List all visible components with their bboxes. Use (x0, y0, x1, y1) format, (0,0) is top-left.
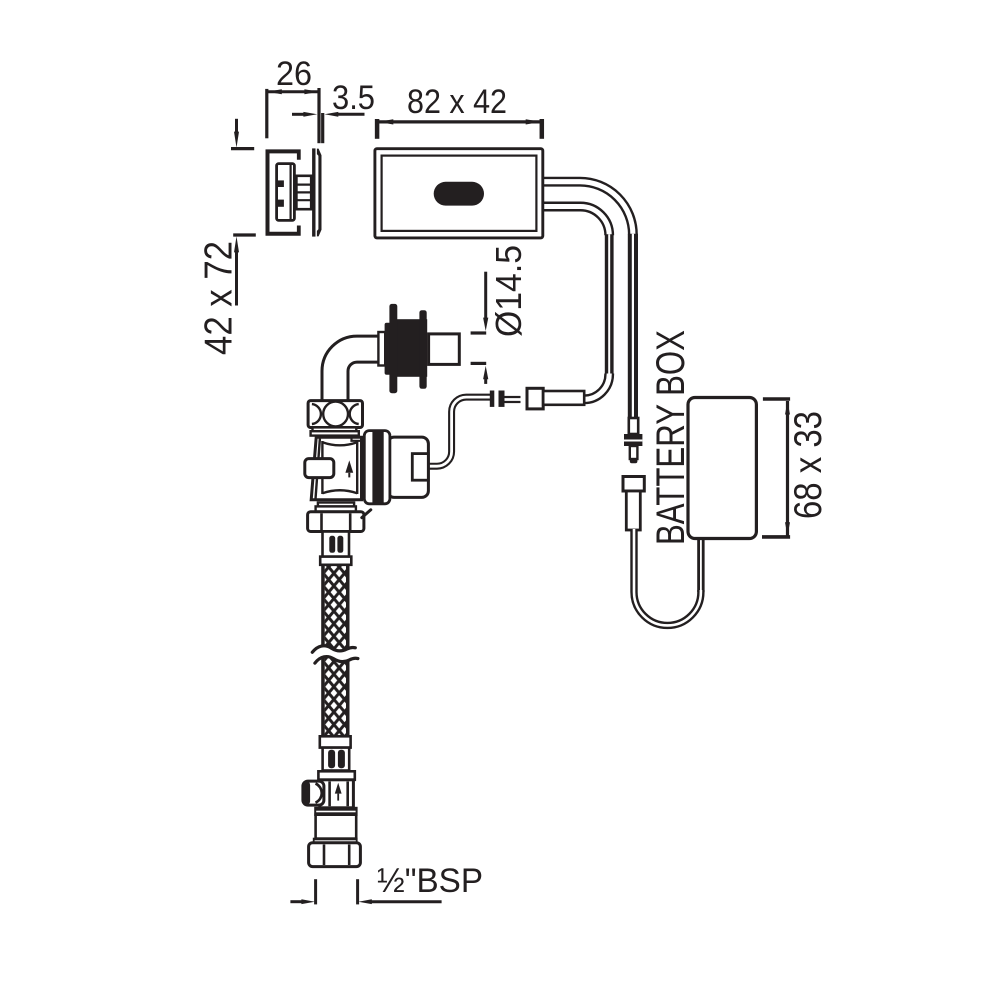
svg-text:68 x 33: 68 x 33 (787, 411, 830, 519)
svg-text:BATTERY BOX: BATTERY BOX (649, 330, 693, 545)
svg-text:26: 26 (276, 55, 312, 93)
svg-text:Ø14.5: Ø14.5 (488, 245, 529, 337)
svg-text:42 x 72: 42 x 72 (198, 241, 241, 355)
svg-text:82 x 42: 82 x 42 (407, 83, 507, 121)
svg-text:½"BSP: ½"BSP (377, 862, 483, 900)
svg-text:3.5: 3.5 (332, 79, 375, 117)
